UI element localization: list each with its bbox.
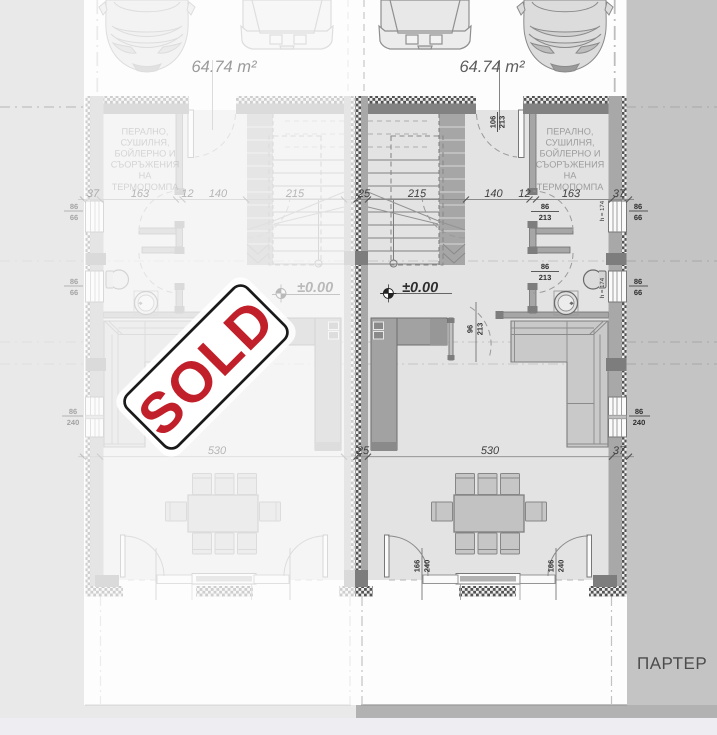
svg-text:ПАРТЕР: ПАРТЕР — [637, 654, 707, 673]
svg-text:66: 66 — [70, 213, 78, 222]
svg-text:140: 140 — [484, 188, 503, 200]
svg-text:86: 86 — [634, 202, 642, 211]
svg-text:86: 86 — [634, 277, 642, 286]
svg-text:±0.00: ±0.00 — [297, 280, 333, 296]
svg-text:25: 25 — [357, 188, 371, 200]
svg-text:163: 163 — [562, 188, 581, 200]
svg-text:НА: НА — [564, 171, 578, 181]
svg-text:163: 163 — [131, 188, 150, 200]
svg-text:37: 37 — [613, 445, 626, 457]
svg-text:25: 25 — [356, 445, 370, 457]
svg-text:66: 66 — [70, 288, 78, 297]
svg-text:86: 86 — [541, 262, 549, 271]
svg-text:213: 213 — [476, 323, 485, 336]
svg-text:86: 86 — [70, 202, 78, 211]
svg-text:140: 140 — [209, 188, 228, 200]
svg-text:СУШИЛНЯ,: СУШИЛНЯ, — [545, 138, 594, 148]
svg-text:12: 12 — [181, 188, 193, 200]
svg-text:86: 86 — [70, 277, 78, 286]
svg-text:h = 174: h = 174 — [599, 277, 606, 298]
svg-text:h = 174: h = 174 — [599, 200, 606, 221]
svg-text:240: 240 — [557, 560, 566, 573]
svg-text:530: 530 — [208, 445, 227, 457]
svg-text:86: 86 — [635, 407, 643, 416]
svg-text:96: 96 — [466, 325, 475, 333]
svg-text:530: 530 — [481, 445, 500, 457]
svg-text:213: 213 — [539, 273, 552, 282]
svg-text:86: 86 — [541, 202, 549, 211]
svg-text:СЪОРЪЖЕНИЯ: СЪОРЪЖЕНИЯ — [111, 160, 180, 170]
svg-text:ПЕРАЛНО,: ПЕРАЛНО, — [547, 127, 594, 137]
svg-text:106: 106 — [489, 116, 498, 129]
svg-text:240: 240 — [633, 418, 646, 427]
svg-text:БОЙЛЕРНО И: БОЙЛЕРНО И — [115, 148, 176, 159]
svg-text:64.74 m²: 64.74 m² — [459, 58, 525, 76]
svg-text:ПЕРАЛНО,: ПЕРАЛНО, — [122, 127, 169, 137]
svg-text:215: 215 — [285, 188, 305, 200]
svg-text:СУШИЛНЯ,: СУШИЛНЯ, — [120, 138, 169, 148]
svg-text:СЪОРЪЖЕНИЯ: СЪОРЪЖЕНИЯ — [536, 160, 605, 170]
svg-text:37: 37 — [613, 188, 626, 200]
svg-text:215: 215 — [407, 188, 427, 200]
svg-text:213: 213 — [539, 213, 552, 222]
svg-text:240: 240 — [423, 560, 432, 573]
svg-text:166: 166 — [413, 560, 422, 573]
svg-text:64.74 m²: 64.74 m² — [191, 58, 257, 76]
svg-text:166: 166 — [547, 560, 556, 573]
svg-text:66: 66 — [634, 213, 642, 222]
svg-text:86: 86 — [69, 407, 77, 416]
svg-text:37: 37 — [87, 188, 100, 200]
svg-text:12: 12 — [518, 188, 530, 200]
svg-text:66: 66 — [634, 288, 642, 297]
svg-text:НА: НА — [139, 171, 153, 181]
svg-text:240: 240 — [67, 418, 80, 427]
svg-text:БОЙЛЕРНО И: БОЙЛЕРНО И — [540, 148, 601, 159]
svg-text:213: 213 — [498, 116, 507, 129]
